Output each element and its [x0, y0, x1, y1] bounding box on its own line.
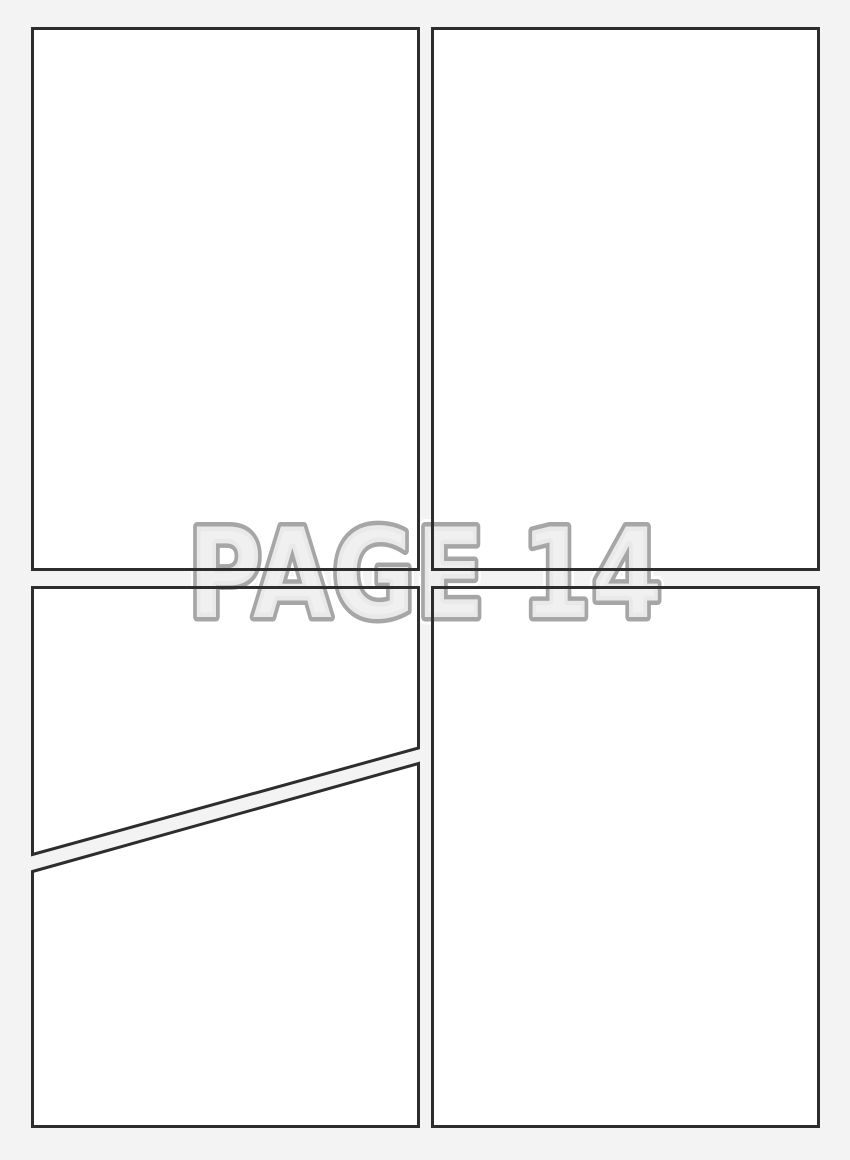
comic-page-template: PAGE 14 PAGE 14 PAGE 14: [0, 0, 850, 1160]
panel-top-left-fill: [31, 27, 420, 571]
panel-top-right-fill: [431, 27, 820, 571]
page-number-watermark-fill: PAGE 14: [188, 503, 663, 647]
panel-bottom-right-fill: [431, 586, 820, 1128]
page-number-watermark: PAGE 14 PAGE 14 PAGE 14: [188, 503, 663, 647]
page-canvas: PAGE 14 PAGE 14 PAGE 14: [0, 0, 850, 1160]
